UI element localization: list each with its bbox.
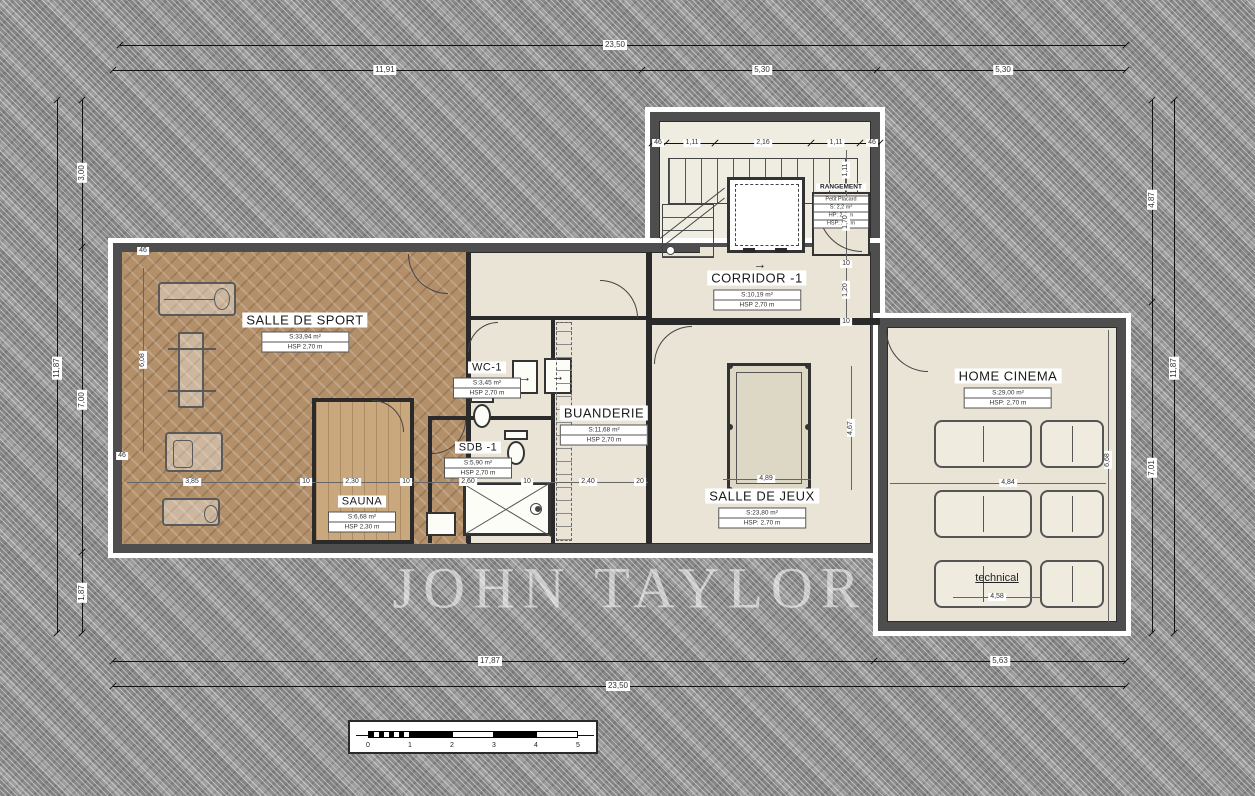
scale-number: 2: [450, 742, 454, 749]
room-area: S:11,68 m²: [561, 426, 647, 435]
room-label-salle-de-sport: SALLE DE SPORT S:33,94 m² HSP 2,70 m: [242, 312, 367, 353]
room-name: SAUNA: [338, 496, 386, 508]
scale-segment: [494, 731, 536, 738]
dim-jeux-height: 4,67: [847, 419, 855, 437]
dim-stair-seg: 1,11: [683, 139, 700, 147]
dim-inner: 3,85: [183, 478, 201, 486]
billiard-table: [727, 363, 811, 493]
scale-number: 0: [366, 742, 370, 749]
dim-wall-tick: 46: [116, 452, 128, 460]
scale-number: 4: [534, 742, 538, 749]
room-hsp: HSP: 2,70 m: [719, 518, 805, 528]
dim-stair-seg: 46: [866, 139, 878, 147]
room-hsp: HSP: 2,70 m: [965, 398, 1051, 408]
room-name: SDB -1: [455, 442, 501, 454]
room-label-sdb1: SDB -1 S:5,90 m² HSP 2,70 m: [444, 438, 512, 479]
dim-top-seg: 11,91: [373, 65, 396, 75]
billiard-pocket: [805, 363, 811, 369]
cinema-sofa: [934, 420, 1032, 468]
cinema-sofa: [934, 490, 1032, 538]
dim-top-seg: 5,30: [993, 65, 1013, 75]
room-name: RANGEMENT: [816, 184, 866, 191]
dim-inner: 2,30: [343, 478, 361, 486]
scale-number: 1: [408, 742, 412, 749]
dim-cinema-height: 6,68: [1104, 451, 1112, 469]
room-label-home-cinema: HOME CINEMA S:29,00 m² HSP: 2,70 m: [955, 368, 1062, 409]
dim-line-inner-row: [127, 482, 648, 483]
scale-bar: 0 1 2 3 4 5: [348, 720, 598, 754]
barbell-bar-1: [168, 348, 216, 350]
room-name: BUANDERIE: [560, 406, 648, 421]
scale-segment: [536, 731, 578, 738]
room-name: SALLE DE JEUX: [705, 489, 819, 504]
dim-inner: 10: [300, 478, 312, 486]
dim-line-right-segments: [1152, 100, 1153, 633]
dim-line-top-segments: [113, 70, 1126, 71]
cinema-sofa: [1040, 420, 1104, 468]
room-hsp: HSP 2,70 m: [262, 342, 348, 352]
watermark: JOHN TAYLOR: [393, 555, 868, 622]
dim-bottom-total: 23,50: [606, 681, 630, 691]
dim-wall-tick: 46: [137, 247, 149, 255]
dim-corridor-tick: 10: [840, 260, 852, 268]
dim-inner: 20: [634, 478, 646, 486]
rowing-machine-icon: [162, 498, 220, 526]
scale-segment: [452, 731, 494, 738]
exercise-bike-icon: [165, 432, 223, 472]
room-area: S:10,19 m²: [714, 291, 800, 300]
room-label-technical: technical: [975, 572, 1018, 584]
dim-top-seg: 5,30: [752, 65, 772, 75]
room-name: SALLE DE SPORT: [242, 313, 367, 328]
billiard-pocket: [727, 424, 733, 430]
dim-inner: 2,60: [459, 478, 477, 486]
dim-line-cinema-height: [1108, 330, 1109, 622]
room-hsp: HSP 2,70 m: [714, 300, 800, 310]
rangement-line: S: 2,2 m²: [814, 204, 868, 212]
dim-technical-width: 4,58: [988, 593, 1006, 601]
wall-buanderie-left: [551, 316, 555, 543]
rangement-line: HP: 2,3 m: [814, 212, 868, 220]
room-label-buanderie: BUANDERIE S:11,68 m² HSP 2,70 m: [560, 405, 648, 446]
rangement-line: Petit Placard: [814, 197, 868, 204]
dim-inner: 10: [521, 478, 533, 486]
billiard-pocket: [727, 363, 733, 369]
dim-stair-seg: 2,16: [754, 139, 772, 147]
room-hsp: HSP 2,70 m: [561, 435, 647, 445]
room-name: WC-1: [468, 362, 506, 374]
dim-right-seg: 4,87: [1147, 190, 1157, 210]
wall-corridor-left: [646, 252, 652, 543]
dim-line-bottom-segments: [113, 661, 1126, 662]
weight-bench-icon: [178, 332, 204, 408]
room-area: S:3,45 m²: [454, 379, 520, 388]
stairs-start-circle: [666, 246, 675, 255]
elevator-cabin: [735, 184, 799, 246]
elevator-door-mark-2: [775, 248, 787, 253]
scale-segment: [410, 731, 452, 738]
shower-valve-icon: [535, 506, 541, 512]
room-hsp: HSP 2,70 m: [445, 468, 511, 478]
rangement-line: HSP: 2,6 m: [814, 220, 868, 228]
dim-right-total: 11,87: [1169, 356, 1179, 379]
dim-left-seg: 7,00: [77, 390, 87, 410]
barbell-bar-2: [168, 390, 216, 392]
dim-corridor-tick: 10: [840, 318, 852, 326]
room-label-wc1: WC-1 S:3,45 m² HSP 2,70 m: [453, 358, 521, 399]
floor-plan: → → → SALLE DE SPORT S:33,94 m² HSP 2,70…: [0, 0, 1255, 796]
room-label-salle-de-jeux: SALLE DE JEUX S:23,80 m² HSP: 2,70 m: [705, 488, 819, 529]
dim-left-total: 11,87: [52, 356, 62, 379]
scale-segment: [368, 731, 410, 738]
dim-jeux-width: 4,89: [757, 475, 775, 483]
room-name: HOME CINEMA: [955, 369, 1062, 384]
scale-number: 3: [492, 742, 496, 749]
cinema-sofa: [1040, 560, 1104, 608]
cinema-sofa: [1040, 490, 1104, 538]
dim-cinema-width: 4,84: [999, 479, 1017, 487]
elevator-door-mark-1: [743, 248, 755, 253]
dim-stair-side: 1,70: [842, 213, 850, 231]
dim-left-seg: 3,00: [77, 163, 87, 183]
dim-right-seg: 7,01: [1147, 458, 1157, 478]
scale-number: 5: [576, 742, 580, 749]
room-label-corridor: CORRIDOR -1 S:10,19 m² HSP 2,70 m: [707, 270, 806, 311]
room-area: S:5,90 m²: [445, 459, 511, 468]
dim-stair-seg: 1,11: [827, 139, 844, 147]
dim-sport-height: 6,08: [139, 351, 147, 369]
dim-bottom-seg: 17,87: [478, 656, 502, 666]
dim-stair-seg: 46: [652, 139, 664, 147]
room-name: CORRIDOR -1: [707, 271, 806, 286]
billiard-pocket: [805, 424, 811, 430]
washbasin-icon: [426, 512, 456, 536]
room-label-sauna: SAUNA S:6,68 m² HSP 2,30 m: [328, 492, 396, 533]
room-area: S:29,00 m²: [965, 389, 1051, 398]
wc-toilet-bowl: [473, 404, 491, 428]
dim-corridor-height: 1,20: [842, 281, 850, 299]
treadmill-icon: [158, 282, 236, 316]
dim-stair-side: 1,11: [842, 161, 850, 178]
room-label-rangement: RANGEMENT Petit Placard S: 2,2 m² HP: 2,…: [813, 176, 869, 229]
room-area: S:23,80 m²: [719, 509, 805, 518]
cinema-sofa: [934, 560, 1032, 608]
dryer-arrow-icon: →: [552, 369, 565, 384]
dim-bottom-seg: 5,63: [990, 656, 1010, 666]
room-area: S:6,68 m²: [329, 513, 395, 522]
dim-left-seg: 1,87: [77, 583, 87, 603]
dim-top-total: 23,50: [603, 40, 627, 50]
room-area: S:33,94 m²: [262, 333, 348, 342]
room-hsp: HSP 2,30 m: [329, 522, 395, 532]
dim-inner: 2,40: [579, 478, 597, 486]
room-hsp: HSP 2,70 m: [454, 388, 520, 398]
dim-inner: 10: [400, 478, 412, 486]
dim-line-cinema-width: [890, 483, 1106, 484]
